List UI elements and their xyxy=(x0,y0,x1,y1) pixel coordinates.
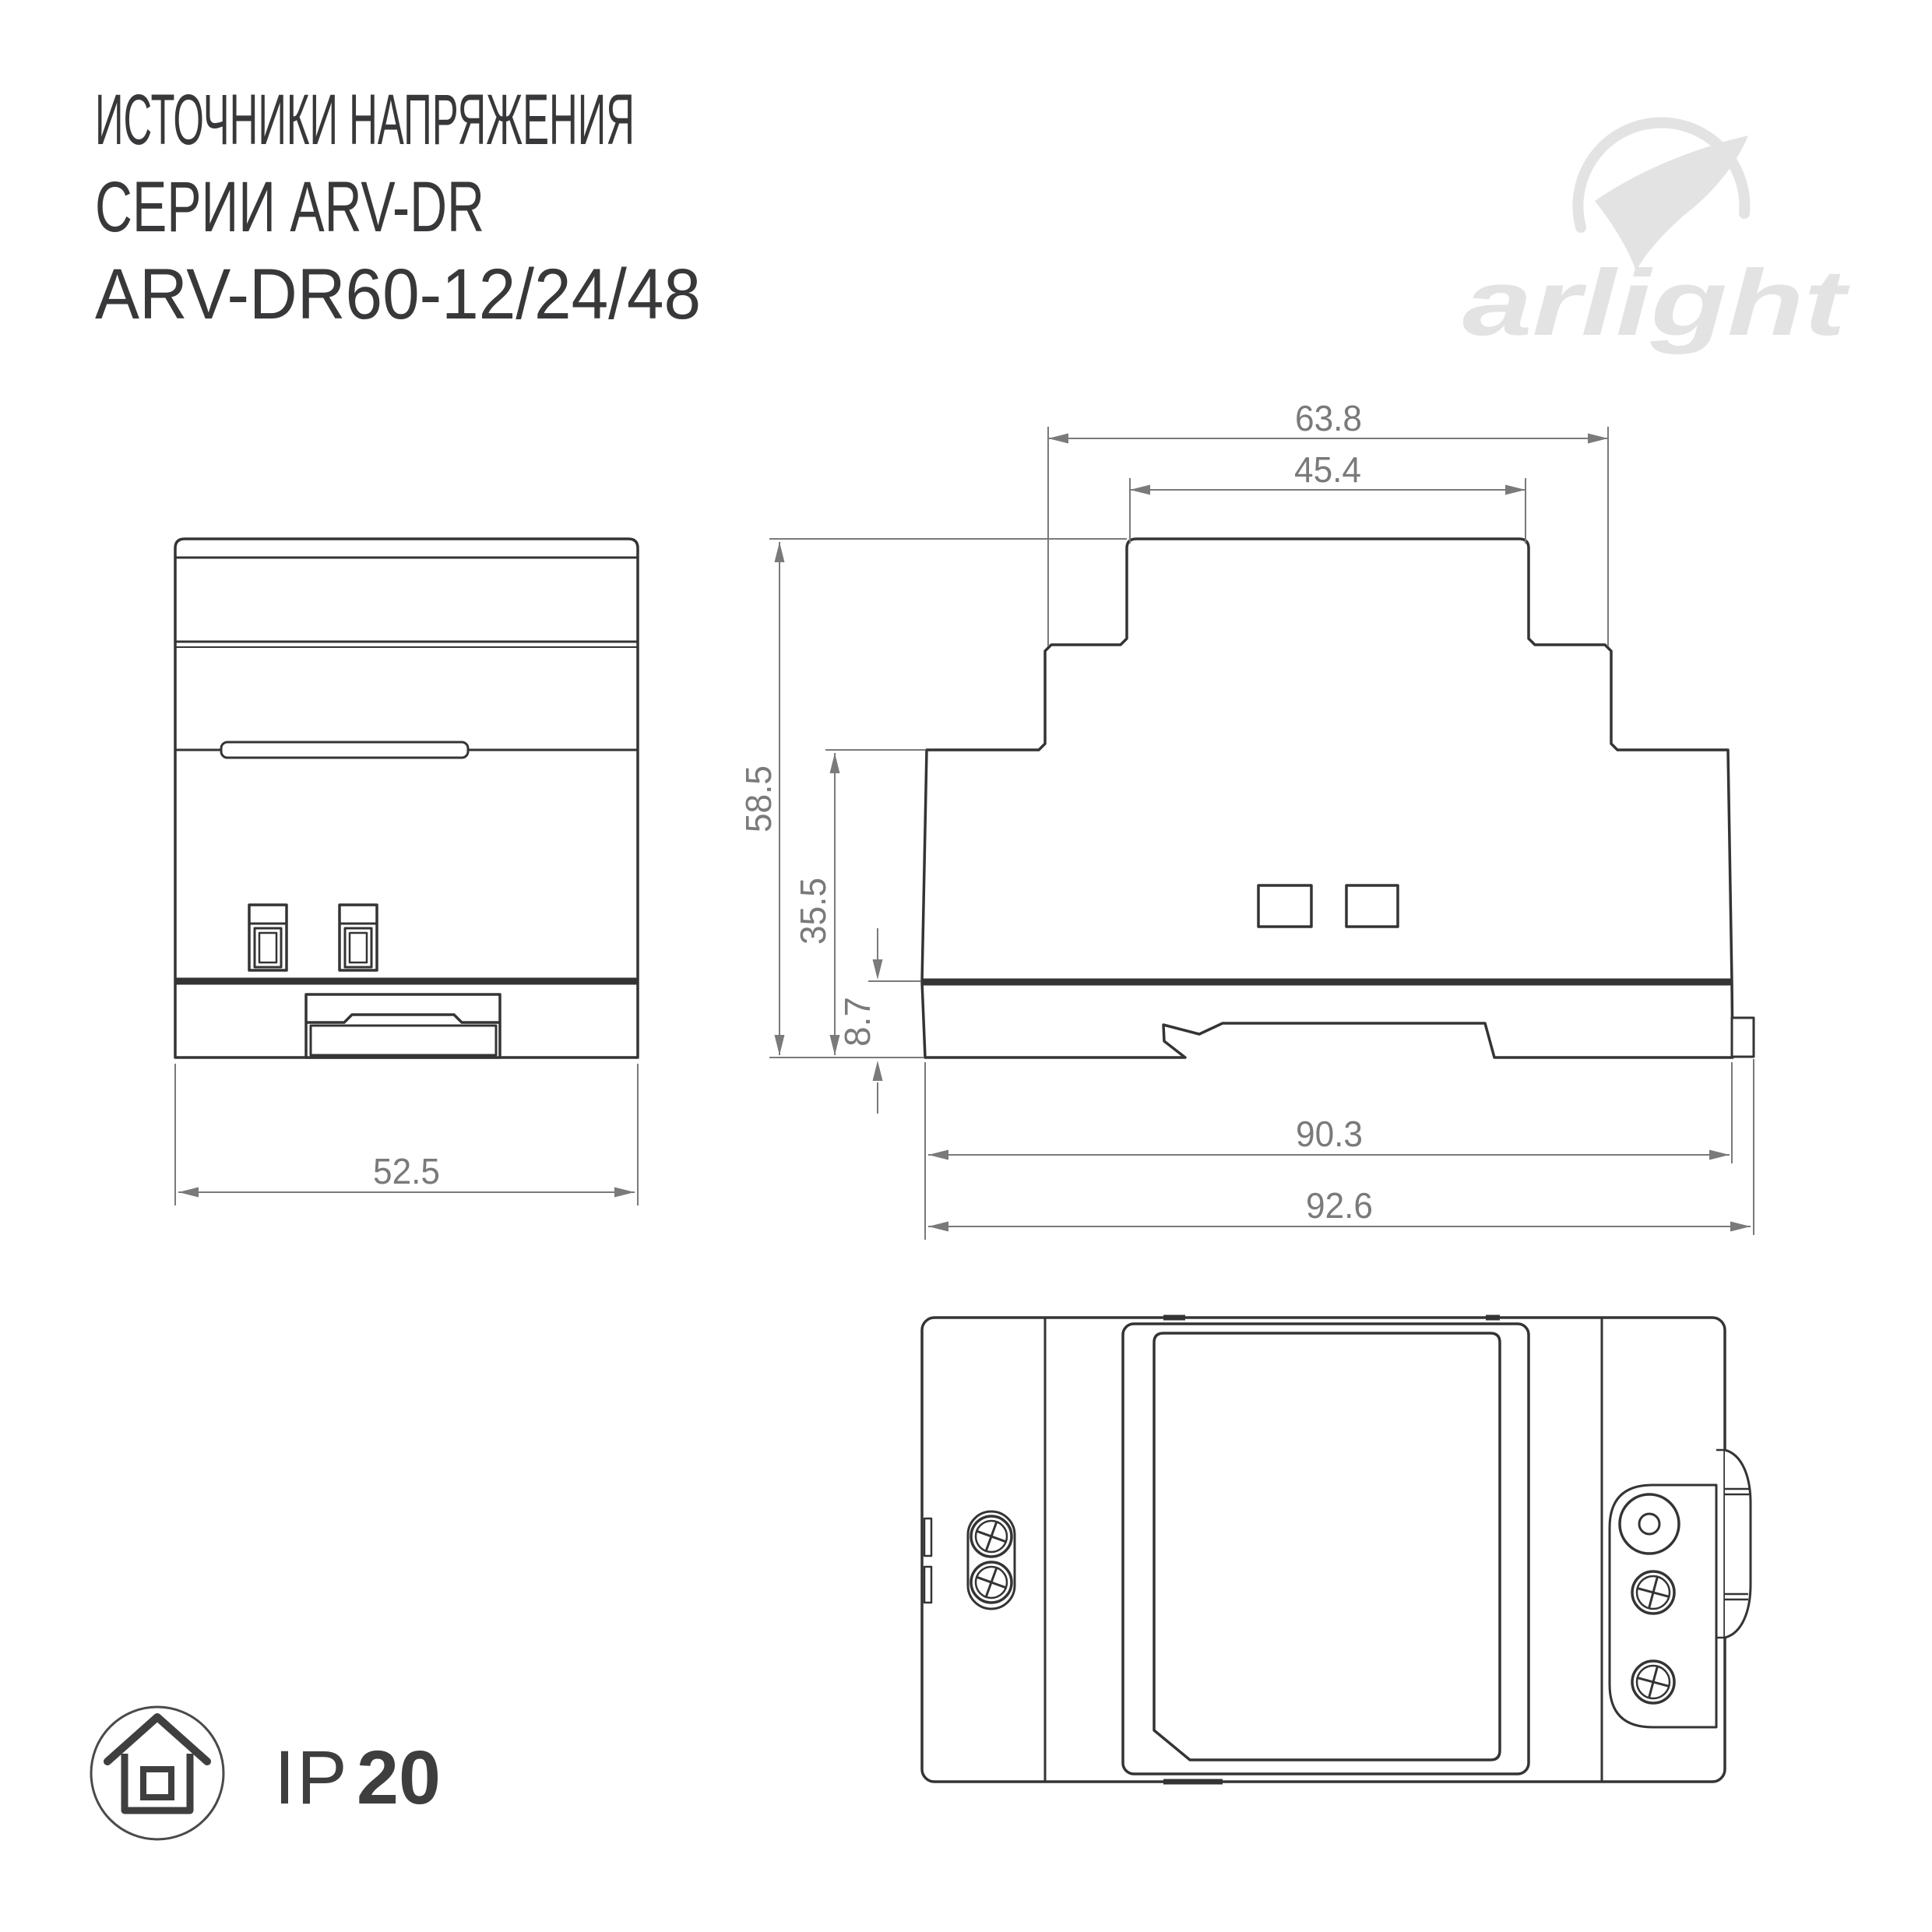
dim-top-inner: 45.4 xyxy=(1130,449,1526,495)
ip-value-label: 20 xyxy=(357,1735,441,1820)
dim-front-width: 52.5 xyxy=(175,1064,638,1205)
dim-label-top-outer: 63.8 xyxy=(1295,398,1362,438)
datasheet-page: ИСТОЧНИКИ НАПРЯЖЕНИЯ СЕРИИ ARV-DR ARV-DR… xyxy=(0,0,1932,1932)
top-body-outline xyxy=(922,1318,1725,1782)
dim-label-body-width: 90.3 xyxy=(1296,1114,1363,1154)
dim-label-height-total: 58.5 xyxy=(738,765,779,832)
dim-height-total: 58.5 xyxy=(738,542,785,1055)
terminal-block-right xyxy=(340,905,377,970)
title-line-2: СЕРИИ ARV-DR xyxy=(95,167,484,247)
house-indoor-icon xyxy=(107,1717,207,1811)
logo-wordmark: arlight xyxy=(1462,251,1851,355)
terminal-block-left xyxy=(249,905,287,970)
dim-label-top-inner: 45.4 xyxy=(1294,449,1361,490)
dim-height-rail: 8.7 xyxy=(837,928,883,1114)
title-line-1: ИСТОЧНИКИ НАПРЯЖЕНИЯ xyxy=(95,80,635,160)
dim-full-width: 92.6 xyxy=(928,1185,1751,1232)
ip-rating-badge: IP 20 xyxy=(91,1707,441,1839)
arrow-left-icon xyxy=(178,1188,199,1198)
dim-body-width: 90.3 xyxy=(928,1114,1730,1160)
brand-logo: arlight xyxy=(1462,123,1851,355)
dim-label-height-rail: 8.7 xyxy=(837,997,878,1047)
arrow-right-icon xyxy=(614,1188,635,1198)
dim-label-full-width: 92.6 xyxy=(1306,1185,1373,1226)
front-din-clip xyxy=(306,994,500,1057)
side-vent-left xyxy=(1258,885,1311,927)
ip-prefix-label: IP xyxy=(274,1735,349,1820)
dim-label-front-width: 52.5 xyxy=(373,1151,440,1191)
badge-circle xyxy=(91,1707,223,1839)
title-line-3: ARV-DR60-12/24/48 xyxy=(95,255,701,334)
top-view xyxy=(922,1318,1751,1782)
page-title: ИСТОЧНИКИ НАПРЯЖЕНИЯ СЕРИИ ARV-DR ARV-DR… xyxy=(95,80,701,334)
front-label-slot xyxy=(221,742,468,758)
side-view xyxy=(922,539,1754,1057)
dim-height-lower: 35.5 xyxy=(793,753,840,1055)
side-vent-right xyxy=(1346,885,1398,927)
front-view: 52.5 xyxy=(175,539,638,1205)
drawing-sheet: ИСТОЧНИКИ НАПРЯЖЕНИЯ СЕРИИ ARV-DR ARV-DR… xyxy=(0,0,1932,1932)
dim-top-outer: 63.8 xyxy=(1048,398,1608,444)
dim-label-height-lower: 35.5 xyxy=(793,878,833,945)
side-clip-tab xyxy=(1732,1018,1754,1057)
